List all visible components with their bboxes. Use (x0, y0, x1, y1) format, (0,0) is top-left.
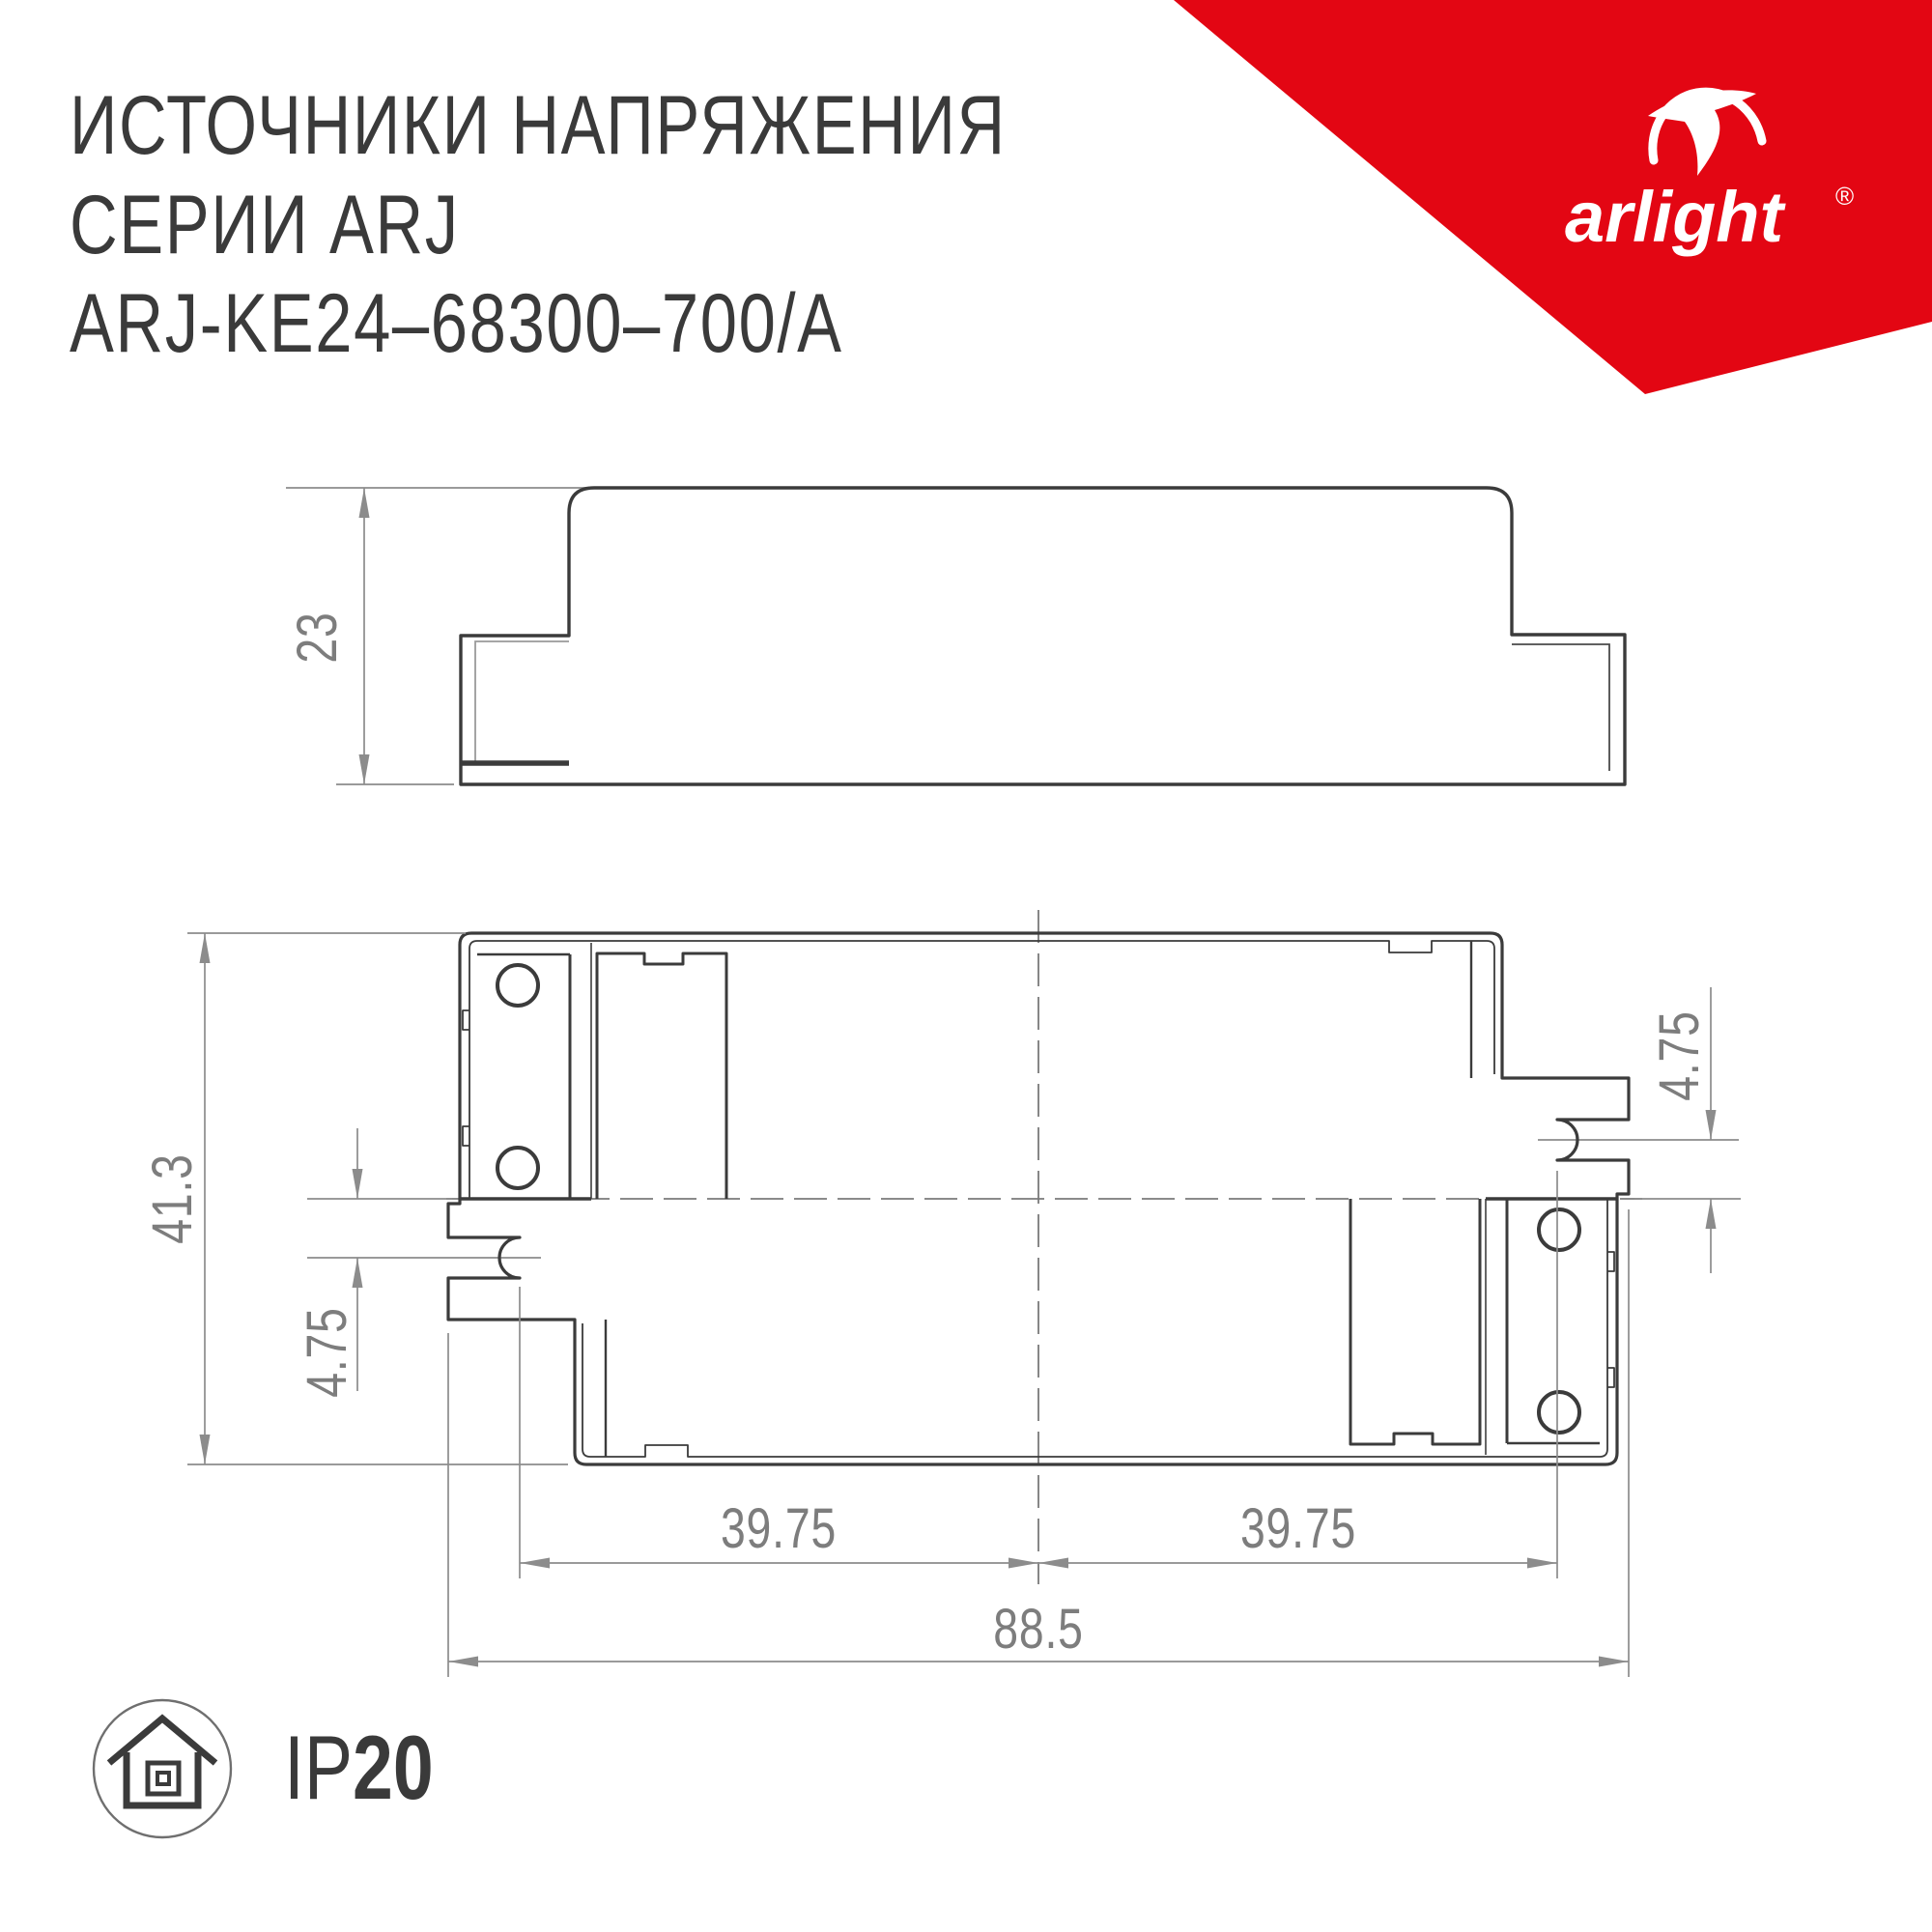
brand-banner: arlight ® (1174, 0, 1932, 394)
arrow-up-icon (200, 933, 211, 963)
arrow-down-icon (1706, 1110, 1717, 1140)
right-mounting-plate (1486, 1199, 1617, 1455)
wall-notch (1607, 1252, 1614, 1271)
side-view-case-outline (461, 488, 1625, 784)
inner-wall-upper (469, 941, 1494, 1198)
house-window-inner (157, 1773, 169, 1784)
house-indoor-icon (109, 1719, 215, 1805)
wall-notch (1607, 1368, 1614, 1387)
inner-wall-lower (582, 1198, 1607, 1457)
arrow-left-icon (520, 1558, 550, 1569)
page-title: ИСТОЧНИКИ НАПРЯЖЕНИЯ СЕРИИ ARJ ARJ-KE24–… (70, 79, 1007, 370)
arrow-right-icon (1009, 1558, 1038, 1569)
house-walls (127, 1752, 198, 1805)
title-line-2: СЕРИИ ARJ (70, 179, 460, 271)
terminal-block-right (1350, 1199, 1480, 1444)
side-view-tab-inner-line (475, 641, 569, 763)
left-mounting-plate (460, 943, 591, 1199)
arrow-down-icon (359, 754, 370, 784)
top-view-drawing: 41.3 4.75 4.75 39.75 39.75 88.5 (141, 910, 1741, 1677)
wall-notch (463, 1010, 469, 1030)
side-view-step-inner-line (1512, 644, 1609, 771)
dim-label-center-slot-right: 39.75 (1240, 1497, 1356, 1560)
ip-prefix: IP (284, 1718, 353, 1819)
dim-label-slot-left: 4.75 (296, 1307, 358, 1398)
screw-hole (497, 965, 538, 1006)
dim-label-center-slot-left: 39.75 (721, 1497, 837, 1560)
dim-label-slot-right: 4.75 (1648, 1010, 1711, 1101)
arrow-up-icon (353, 1258, 363, 1288)
arrow-left-icon (1038, 1558, 1068, 1569)
arrow-up-icon (359, 488, 370, 518)
arrow-down-icon (353, 1169, 363, 1199)
ip-rating-label: IP20 (284, 1718, 434, 1819)
screw-hole (1539, 1392, 1579, 1433)
arrow-left-icon (448, 1657, 478, 1667)
side-view-drawing: 23 (286, 488, 1625, 784)
screw-hole (497, 1148, 538, 1188)
dim-label-height-41-3: 41.3 (141, 1153, 204, 1244)
arrow-down-icon (200, 1435, 211, 1464)
screw-hole (1539, 1209, 1579, 1250)
ip-value: 20 (353, 1718, 434, 1819)
arrow-right-icon (1599, 1657, 1629, 1667)
ip-rating-badge: IP20 (94, 1700, 434, 1837)
dim-label-overall-width: 88.5 (993, 1598, 1084, 1661)
datasheet-page: arlight ® ИСТОЧНИКИ НАПРЯЖЕНИЯ СЕРИИ ARJ… (0, 0, 1932, 1932)
terminal-block-left (597, 953, 726, 1199)
arrow-right-icon (1527, 1558, 1557, 1569)
dim-label-height-23: 23 (286, 611, 349, 663)
wall-notch (463, 1126, 469, 1146)
title-line-3: ARJ-KE24–68300–700/A (70, 277, 843, 370)
title-line-1: ИСТОЧНИКИ НАПРЯЖЕНИЯ (70, 79, 1007, 172)
house-window-outer (148, 1763, 179, 1794)
banner-triangle (1174, 0, 1932, 394)
arrow-up-icon (1706, 1199, 1717, 1229)
registered-mark: ® (1835, 182, 1854, 211)
technical-drawing-canvas: arlight ® ИСТОЧНИКИ НАПРЯЖЕНИЯ СЕРИИ ARJ… (0, 0, 1932, 1932)
brand-name: arlight (1565, 177, 1786, 257)
